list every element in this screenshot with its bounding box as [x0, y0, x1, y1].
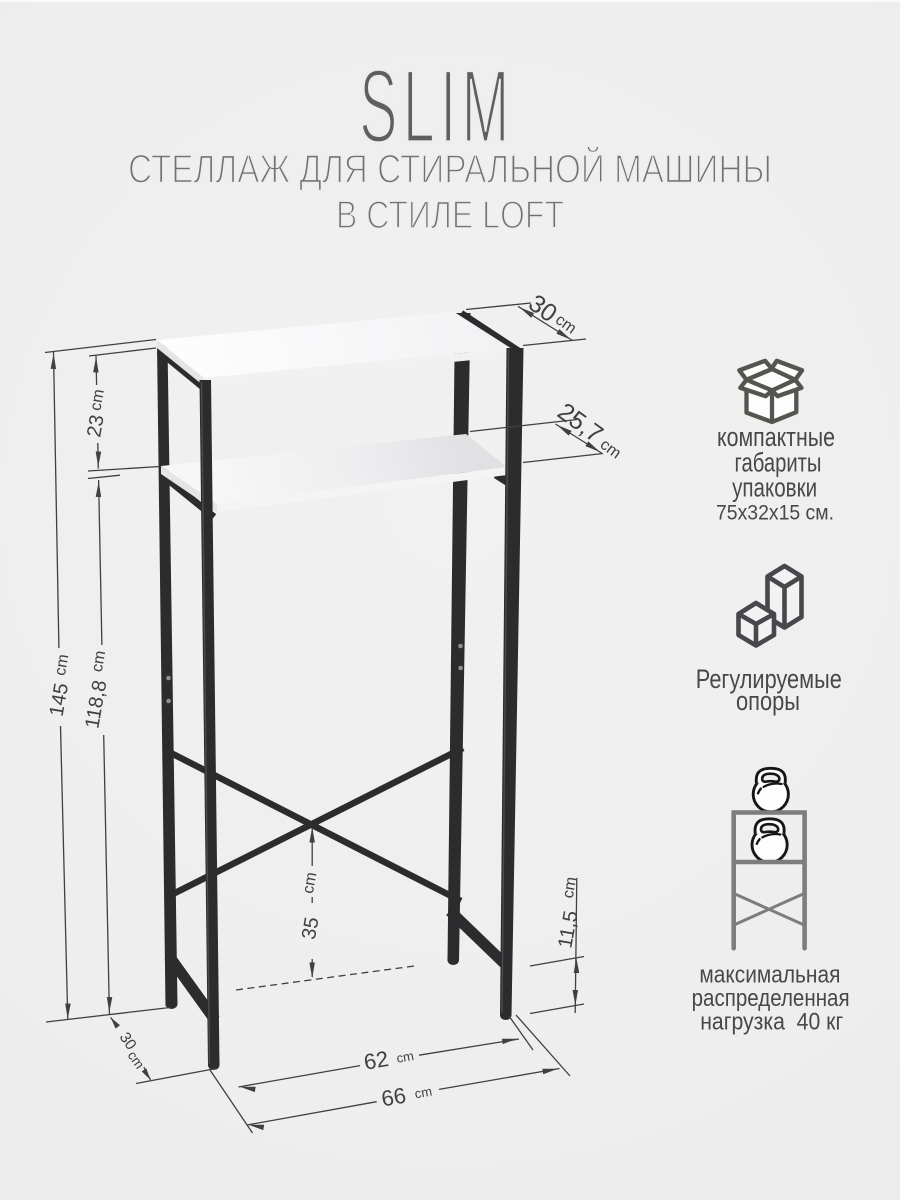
- svg-text:cm: cm: [413, 1084, 433, 1102]
- svg-text:нагрузка 40 кг: нагрузка 40 кг: [700, 1009, 843, 1036]
- svg-text:35: 35: [298, 915, 324, 941]
- svg-text:В СТИЛЕ LOFT: В СТИЛЕ LOFT: [336, 194, 564, 237]
- svg-text:25,7: 25,7: [552, 397, 608, 448]
- svg-text:62: 62: [362, 1046, 390, 1075]
- svg-text:опоры: опоры: [736, 686, 800, 716]
- svg-text:23: 23: [83, 413, 109, 439]
- svg-text:66: 66: [379, 1083, 407, 1112]
- svg-text:75х32х15 см.: 75х32х15 см.: [716, 502, 834, 525]
- svg-text:145: 145: [46, 681, 73, 718]
- svg-text:cm: cm: [552, 311, 579, 337]
- svg-text:cm: cm: [560, 876, 580, 900]
- svg-text:упаковки: упаковки: [732, 473, 817, 503]
- svg-text:cm: cm: [300, 871, 320, 895]
- svg-text:11,5: 11,5: [554, 909, 582, 950]
- svg-text:cm: cm: [597, 436, 624, 462]
- svg-text:cm: cm: [87, 388, 107, 412]
- svg-text:118,8: 118,8: [81, 679, 111, 731]
- svg-text:cm: cm: [395, 1048, 415, 1066]
- svg-text:СТЕЛЛАЖ ДЛЯ СТИРАЛЬНОЙ МАШИНЫ: СТЕЛЛАЖ ДЛЯ СТИРАЛЬНОЙ МАШИНЫ: [128, 147, 772, 192]
- svg-text:cm: cm: [89, 649, 109, 673]
- svg-text:cm: cm: [52, 653, 72, 677]
